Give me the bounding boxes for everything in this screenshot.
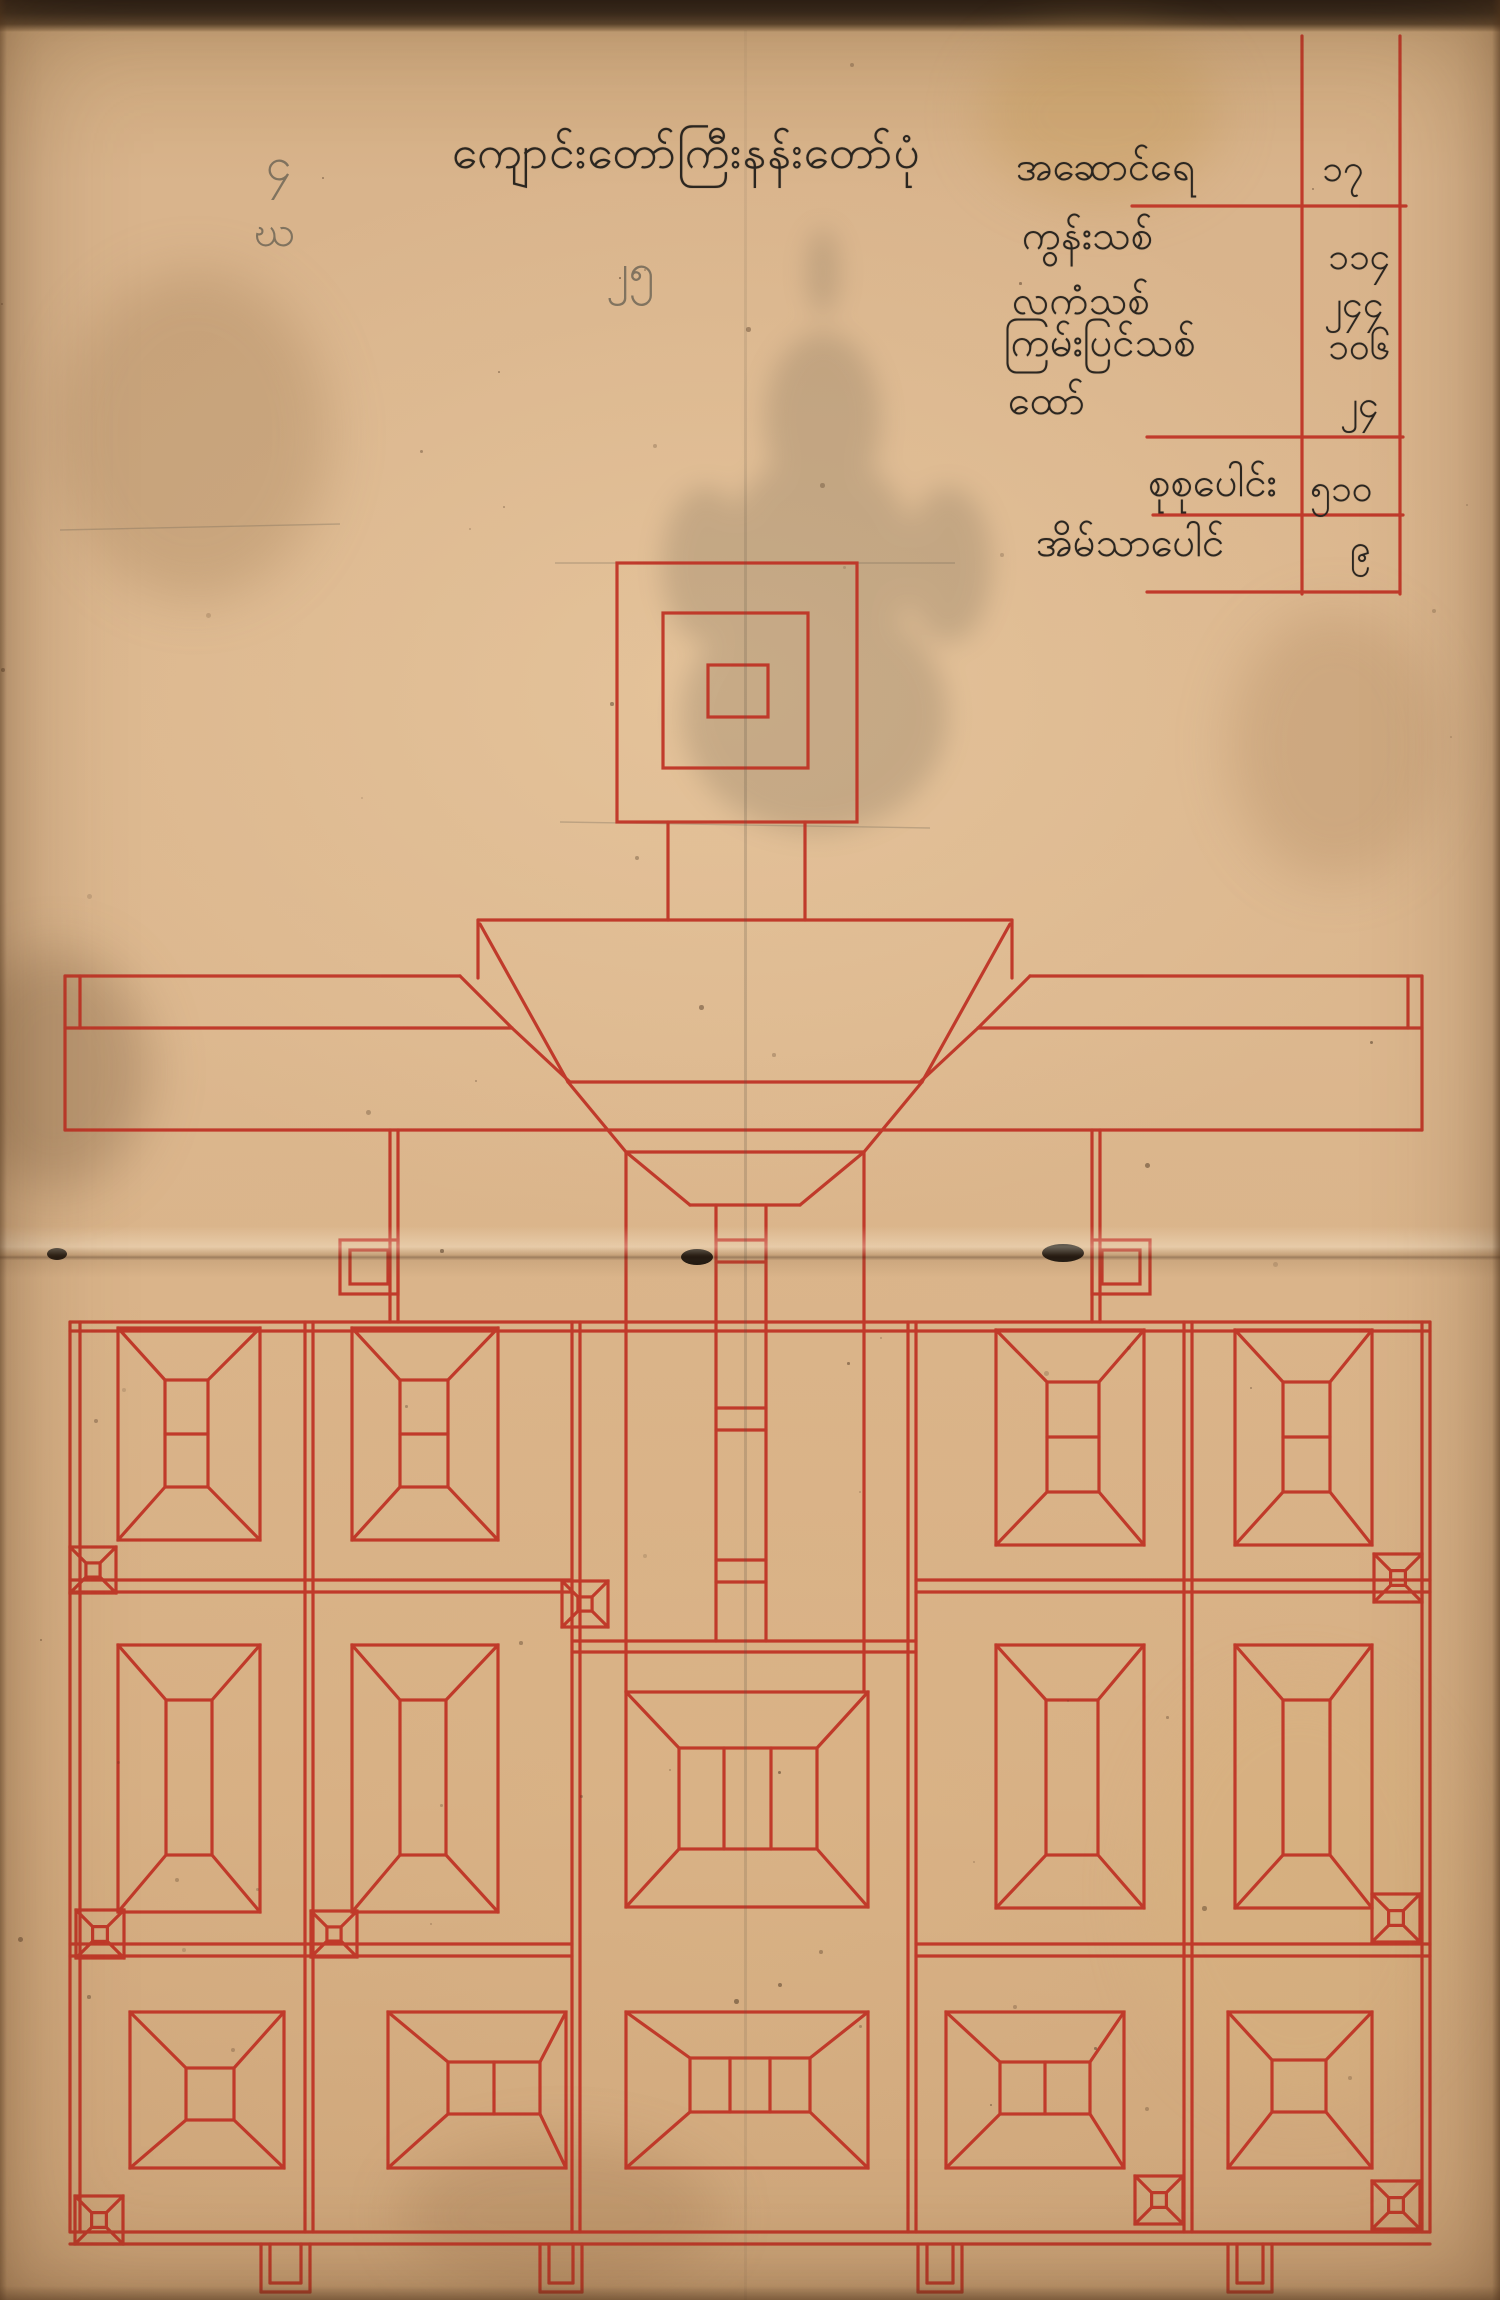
table-total-label: စုစုပေါင်း xyxy=(1148,462,1277,504)
room-roof-outer xyxy=(996,1645,1144,1908)
roof-hip xyxy=(448,1487,498,1540)
roof-hip xyxy=(1330,1330,1372,1382)
roof-hip xyxy=(1330,1645,1372,1700)
room-roof-outer xyxy=(626,1692,868,1907)
roof-hip xyxy=(540,2012,566,2062)
rosette-diagonal xyxy=(341,1911,357,1927)
roof-hip xyxy=(1235,1492,1283,1545)
roof-hip xyxy=(1330,1492,1372,1545)
stair-landing xyxy=(350,1250,388,1284)
roof-hip xyxy=(234,2012,284,2068)
roof-hip xyxy=(388,2114,448,2168)
room-roof-inner xyxy=(1272,2060,1326,2112)
table-row-label: လကံသစ် xyxy=(1012,280,1150,322)
room-roof-outer xyxy=(118,1645,260,1912)
rosette-diagonal xyxy=(1372,1894,1389,1911)
rosette-diagonal xyxy=(1405,1554,1422,1571)
central-porch xyxy=(480,924,568,1082)
roof-hip xyxy=(1228,2012,1272,2060)
plan-drawing: ၄ ဃ ၂၅ xyxy=(0,0,1500,2300)
room-roof-inner xyxy=(679,1748,817,1849)
roof-hip xyxy=(352,1328,400,1380)
roof-hip xyxy=(448,1328,498,1380)
roof-hip xyxy=(212,1855,260,1912)
table-row-label: အဆောင်ရေ xyxy=(1016,146,1195,188)
roof-hip xyxy=(1098,1855,1144,1908)
roof-hip xyxy=(1326,2012,1372,2060)
roof-hip xyxy=(1235,1645,1283,1700)
roof-hip xyxy=(352,1645,400,1700)
rosette-diagonal xyxy=(100,1547,116,1563)
roof-hip xyxy=(352,1487,400,1540)
roof-hip xyxy=(446,1645,498,1700)
roof-hip xyxy=(446,1855,498,1912)
central-pavilion xyxy=(800,1152,864,1205)
roof-hip xyxy=(626,2012,690,2058)
room-roof-inner xyxy=(166,1700,212,1855)
roof-hip xyxy=(118,1855,166,1912)
roof-hip xyxy=(118,1328,165,1380)
rosette-diagonal xyxy=(75,2196,92,2213)
roof-hip xyxy=(946,2114,1000,2168)
table-total-value: ၅၁၀ xyxy=(1310,470,1372,509)
pencil-mark-top-left-lower: ဃ xyxy=(254,207,295,256)
table-row-value: ၂၄၄ xyxy=(1324,286,1384,325)
room-roof-outer xyxy=(626,2012,868,2168)
roof-hip xyxy=(996,1855,1046,1908)
rosette-diagonal xyxy=(1166,2176,1183,2193)
rosette-diagonal xyxy=(592,1611,608,1627)
rosette-diagonal xyxy=(562,1611,578,1627)
central-porch xyxy=(568,1082,626,1152)
rosette-diagonal xyxy=(1403,1894,1420,1911)
table-footer-label: အိမ်သာပေါင် xyxy=(1036,522,1224,564)
rosette-diagonal xyxy=(107,1910,124,1927)
room-roof-inner xyxy=(1046,1700,1098,1855)
rosette-diagonal xyxy=(1374,1554,1391,1571)
central-porch xyxy=(922,924,1010,1082)
roof-hip xyxy=(946,2012,1000,2062)
roof-hip xyxy=(996,1645,1046,1700)
rosette-diagonal xyxy=(1405,1585,1422,1602)
roof-hip xyxy=(626,1692,679,1748)
rosette-diagonal xyxy=(1372,2181,1389,2198)
roof-hip xyxy=(212,1645,260,1700)
roof-hip xyxy=(810,2112,868,2168)
rosette-diagonal xyxy=(1403,2212,1420,2229)
roof-hip xyxy=(817,1692,868,1748)
table-footer-value: ၉ xyxy=(1350,530,1371,569)
rosette-diagonal xyxy=(1372,1925,1389,1942)
roof-hip xyxy=(130,2120,186,2168)
room-roof-inner xyxy=(400,1700,446,1855)
rosette-diagonal xyxy=(592,1581,608,1597)
roof-hip xyxy=(130,2012,186,2068)
roof-hip xyxy=(352,1855,400,1912)
roof-hip xyxy=(118,1487,165,1540)
rosette-diagonal xyxy=(1403,2181,1420,2198)
table-row-value: ၂၄ xyxy=(1340,386,1379,425)
roof-hip xyxy=(540,2114,566,2168)
table-row-label: ကြမ်းပြင်သစ် xyxy=(1004,322,1196,364)
rosette-diagonal xyxy=(562,1581,578,1597)
rosette-inner xyxy=(1389,1911,1404,1926)
pencil-mark-top-left-upper: ၄ xyxy=(266,137,292,201)
roof-hip xyxy=(388,2012,448,2062)
rosette-diagonal xyxy=(1403,1925,1420,1942)
room-roof-inner xyxy=(186,2068,234,2120)
rosette-diagonal xyxy=(1372,2212,1389,2229)
rosette-diagonal xyxy=(70,1547,86,1563)
roof-hip xyxy=(996,1492,1047,1545)
roof-hip xyxy=(817,1849,868,1907)
room-roof-inner xyxy=(690,2058,810,2112)
rosette-diagonal xyxy=(106,2227,123,2244)
table-row-value: ၁၁၄ xyxy=(1328,238,1390,277)
roof-hip xyxy=(234,2120,284,2168)
roof-hip xyxy=(1099,1330,1144,1382)
page-title: ကျောင်းတော်ကြီးနန်းတော်ပုံ xyxy=(452,128,921,176)
red-ink-linework xyxy=(65,36,1430,2292)
ink-blots xyxy=(47,1244,1084,1265)
roof-hip xyxy=(1098,1645,1144,1700)
rosette-diagonal xyxy=(1135,2176,1152,2193)
room-roof-outer xyxy=(352,1645,498,1912)
rosette-inner xyxy=(1152,2193,1167,2208)
roof-hip xyxy=(810,2012,868,2058)
rosette-inner xyxy=(1391,1571,1406,1586)
roof-hip xyxy=(1090,2114,1124,2168)
roof-hip xyxy=(1090,2012,1124,2062)
rosette-inner xyxy=(92,2213,107,2228)
roof-hip xyxy=(1330,1855,1372,1908)
roof-hip xyxy=(1099,1492,1144,1545)
rosette-diagonal xyxy=(1374,1585,1391,1602)
rosette-inner xyxy=(327,1927,341,1941)
page-edge-shadow-left xyxy=(0,0,7,2300)
roof-hip xyxy=(1235,1330,1283,1382)
table-row-value: ၁၀၆ xyxy=(1328,328,1390,367)
room-roof-inner xyxy=(1283,1700,1330,1855)
roof-hip xyxy=(626,1849,679,1907)
central-pavilion xyxy=(626,1152,690,1205)
rosette-diagonal xyxy=(1166,2207,1183,2224)
manuscript-page: ၄ ဃ ၂၅ ကျောင်းတော်ကြီးနန်းတော်ပုံ အဆောင်… xyxy=(0,0,1500,2300)
central-porch xyxy=(460,976,512,1028)
rosette-inner xyxy=(86,1563,100,1577)
stair-landing xyxy=(1102,1250,1140,1284)
room-roof-outer xyxy=(1235,1645,1372,1908)
rosette-inner xyxy=(1389,2198,1404,2213)
roof-hip xyxy=(626,2112,690,2168)
roof-hip xyxy=(208,1328,260,1380)
roof-hip xyxy=(996,1330,1047,1382)
rosette-diagonal xyxy=(106,2196,123,2213)
central-porch xyxy=(864,1082,922,1152)
ghost-showthrough-figure xyxy=(662,228,992,833)
roof-hip xyxy=(1228,2112,1272,2168)
roof-hip xyxy=(118,1645,166,1700)
pencil-mark-near-title: ၂၅ xyxy=(606,243,654,307)
rosette-diagonal xyxy=(75,2227,92,2244)
central-porch xyxy=(978,976,1030,1028)
table-row-label: ထော် xyxy=(1008,380,1085,422)
page-edge-shadow-right xyxy=(1492,0,1500,2300)
roof-hip xyxy=(1235,1855,1283,1908)
roof-hip xyxy=(208,1487,260,1540)
rosette-inner xyxy=(93,1927,108,1942)
roof-hip xyxy=(1326,2112,1372,2168)
rosette-diagonal xyxy=(1135,2207,1152,2224)
page-edge-shadow-bottom xyxy=(0,2286,1500,2300)
table-row-label: ကွန်းသစ် xyxy=(1022,215,1153,257)
table-row-value: ၁၇ xyxy=(1322,150,1364,189)
